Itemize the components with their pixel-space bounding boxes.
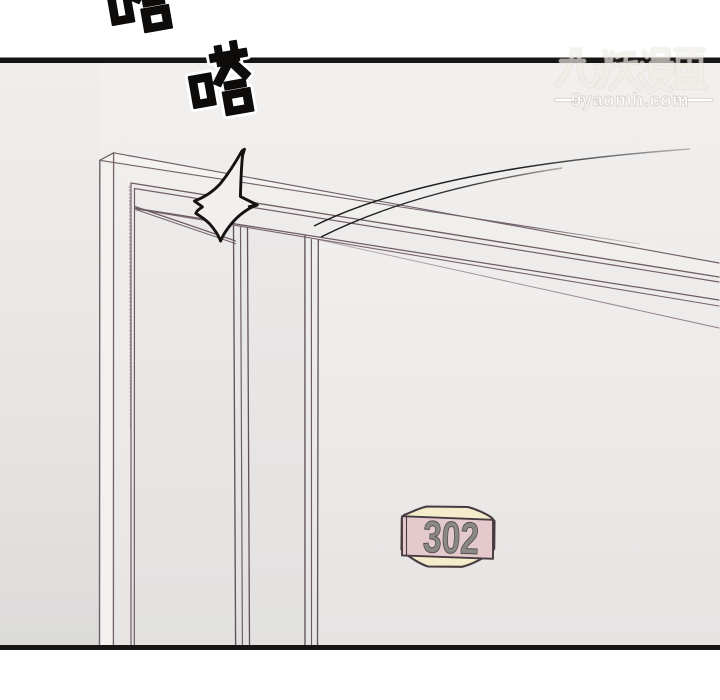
svg-text:9yaomh.com: 9yaomh.com	[571, 89, 689, 110]
svg-text:302: 302	[422, 511, 480, 564]
